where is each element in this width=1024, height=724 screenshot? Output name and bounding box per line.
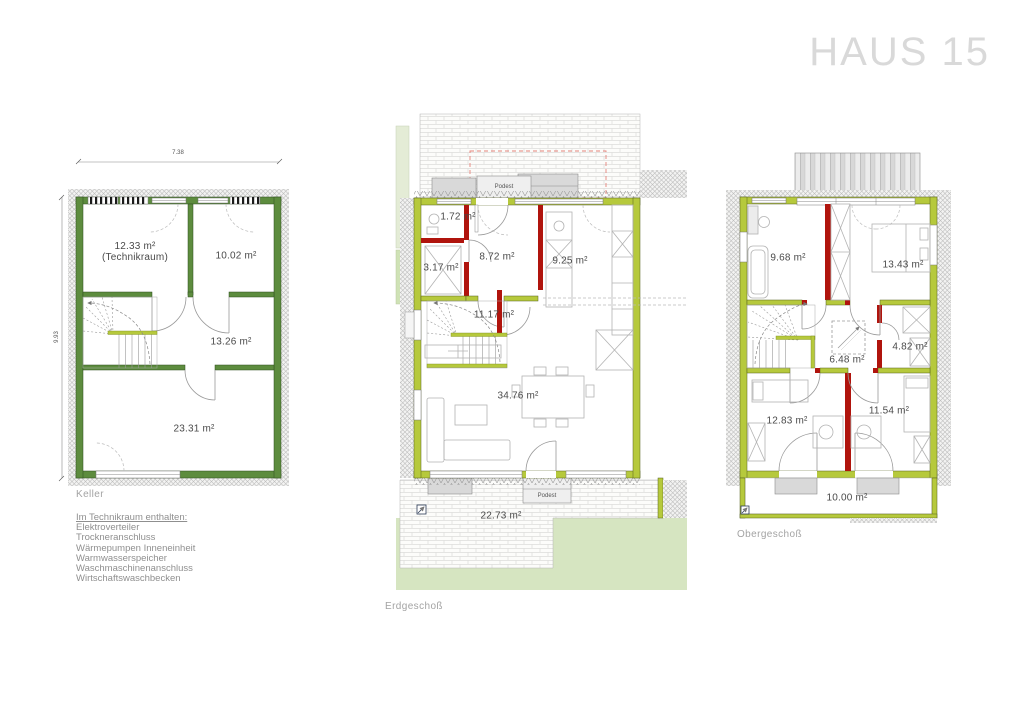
technikraum-notes: Im Technikraum enthalten: Elektroverteil…: [76, 513, 195, 584]
room-area-label: 34.76 m²: [497, 391, 538, 402]
podest-label: Podest: [495, 184, 514, 190]
room-area-label: 8.72 m²: [479, 252, 514, 263]
floor-caption-obergeschoss: Obergeschoß: [737, 529, 802, 540]
room-area-label: 9.25 m²: [552, 256, 587, 267]
north-arrow: [741, 506, 749, 514]
note-item: Wirtschaftswaschbecken: [76, 574, 195, 584]
garden-wall: [658, 478, 663, 518]
floor-caption-erdgeschoss: Erdgeschoß: [385, 601, 443, 612]
room-area-label: 12.33 m² (Technikraum): [102, 241, 168, 263]
room-area-label: 11.17 m²: [474, 310, 514, 321]
room-area-label: 12.83 m²: [766, 416, 807, 427]
room-area-label: 13.43 m²: [882, 260, 923, 271]
room-area-label: 9.68 m²: [770, 253, 805, 264]
floorplan-sheet: HAUS 15 7.38 9.93 12.33 m² (Technikraum)…: [0, 0, 1024, 724]
floorplan-canvas: [0, 0, 1024, 724]
room-area: 12.33 m²: [102, 241, 168, 252]
podest-label: Podest: [538, 493, 557, 499]
room-area-label: 4.82 m²: [892, 342, 927, 353]
room-area-label: 23.31 m²: [173, 424, 214, 435]
dimension-width-label: 7.38: [172, 150, 184, 156]
floor-caption-keller: Keller: [76, 489, 104, 500]
page-title: HAUS 15: [809, 30, 990, 75]
keller-plan-drawing: [59, 159, 289, 486]
room-area-label: 22.73 m²: [480, 511, 521, 522]
room-area-label: 10.00 m²: [826, 493, 867, 504]
erdgeschoss-plan-drawing: [396, 114, 687, 590]
north-arrow: [417, 505, 426, 514]
dimension-depth-label: 9.93: [54, 331, 60, 343]
room-area-label: 6.48 m²: [829, 355, 864, 366]
room-area-label: 10.02 m²: [215, 251, 256, 262]
room-area-label: 1.72 m²: [440, 212, 475, 223]
room-area-label: 11.54 m²: [869, 406, 909, 417]
room-area-label: 3.17 m²: [423, 263, 458, 274]
room-note: (Technikraum): [102, 252, 168, 263]
neighbor-band: [640, 170, 687, 198]
obergeschoss-plan-drawing: [726, 153, 951, 523]
room-area-label: 13.26 m²: [210, 337, 251, 348]
